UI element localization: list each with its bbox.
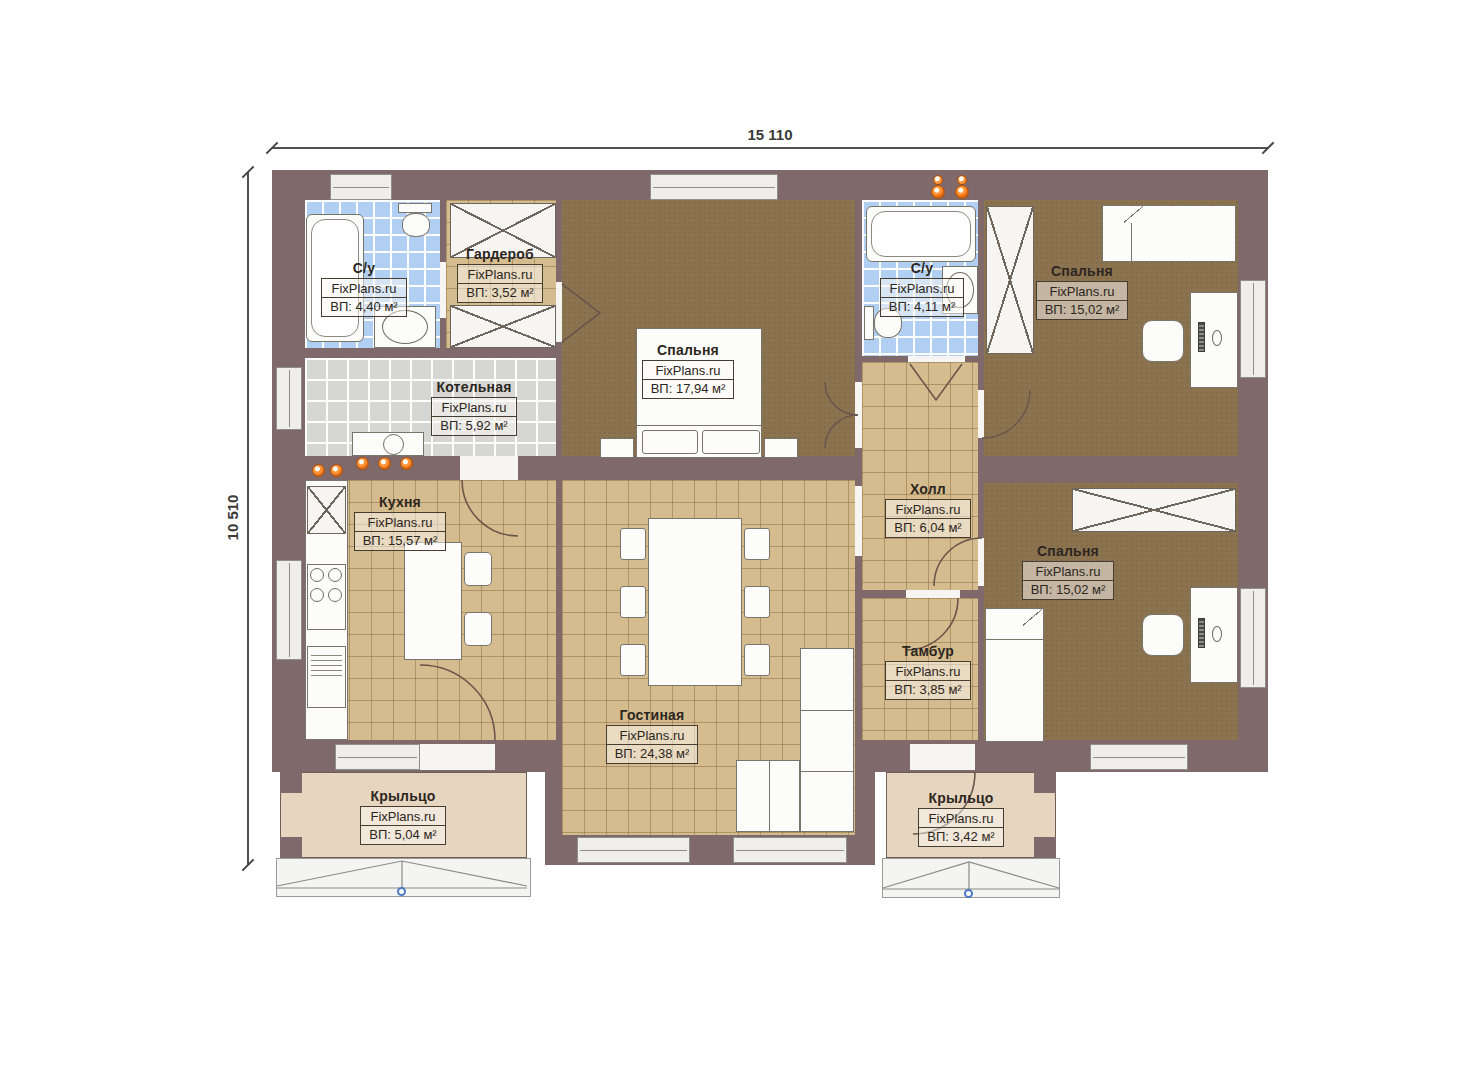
mouse-icon (1212, 626, 1222, 642)
room-name: Крыльцо (891, 790, 1031, 806)
room-area: ВП: 5,92 м² (432, 417, 515, 435)
room-label-bathroom-right: С/у FixPlans.ru ВП: 4,11 м² (852, 260, 992, 317)
window (335, 744, 420, 770)
watermark: FixPlans.ru (1037, 282, 1128, 301)
blanket-fold (1124, 206, 1144, 223)
refrigerator (307, 646, 346, 708)
room-name: Холл (858, 481, 998, 497)
dimension-line-left (247, 172, 249, 865)
dimension-line-top (272, 147, 1268, 149)
window (577, 837, 690, 863)
sofa-chaise (736, 760, 800, 832)
computer-monitor-icon (1198, 618, 1205, 648)
window (733, 837, 847, 863)
room-label-living: Гостиная FixPlans.ru ВП: 24,38 м² (582, 707, 722, 764)
room-name: Спальня (1012, 263, 1152, 279)
toilet (402, 213, 430, 237)
watermark: FixPlans.ru (643, 361, 734, 380)
watermark: FixPlans.ru (607, 726, 698, 745)
stove-burner (310, 568, 324, 582)
room-label-boiler: Котельная FixPlans.ru ВП: 5,92 м² (404, 379, 544, 436)
room-hall (862, 362, 978, 590)
blanket-fold (1023, 609, 1043, 626)
bathtub (866, 206, 976, 262)
chair (744, 644, 770, 676)
sofa (800, 648, 854, 832)
watermark: FixPlans.ru (1023, 562, 1114, 581)
window (650, 174, 778, 200)
room-area: ВП: 4,11 м² (881, 298, 963, 316)
door-opening (908, 356, 965, 362)
chair (620, 586, 646, 618)
porch-pillar (280, 772, 302, 793)
toilet-tank (398, 203, 432, 213)
pillow (642, 430, 698, 454)
chair (744, 586, 770, 618)
utility-point-icon (330, 464, 343, 477)
utility-point-icon (931, 185, 945, 199)
survey-marker-icon (964, 889, 973, 898)
room-name: С/у (852, 260, 992, 276)
room-name: Спальня (618, 342, 758, 358)
watermark: FixPlans.ru (322, 279, 405, 298)
room-area: ВП: 15,02 м² (1023, 581, 1114, 599)
nightstand (600, 438, 634, 458)
window (330, 174, 392, 200)
room-label-tambour: Тамбур FixPlans.ru ВП: 3,85 м² (858, 643, 998, 700)
watermark: FixPlans.ru (361, 807, 444, 826)
room-area: ВП: 3,85 м² (886, 681, 969, 699)
window (1240, 280, 1266, 378)
room-name: Котельная (404, 379, 544, 395)
utility-point-icon (378, 457, 391, 470)
nightstand (764, 438, 798, 458)
room-area: ВП: 6,04 м² (886, 519, 969, 537)
utility-point-icon (955, 185, 969, 199)
dimension-width-label: 15 110 (720, 126, 820, 143)
room-label-bedroom-topright: Спальня FixPlans.ru ВП: 15,02 м² (1012, 263, 1152, 320)
watermark: FixPlans.ru (886, 500, 969, 519)
watermark: FixPlans.ru (355, 513, 446, 532)
wardrobe-cabinet (450, 305, 556, 348)
room-label-bedroom-center: Спальня FixPlans.ru ВП: 17,94 м² (618, 342, 758, 399)
watermark: FixPlans.ru (458, 265, 541, 284)
room-name: Тамбур (858, 643, 998, 659)
watermark: FixPlans.ru (881, 279, 963, 298)
window (1090, 744, 1188, 770)
room-area: ВП: 3,42 м² (919, 828, 1002, 846)
window (276, 367, 302, 430)
room-label-wardrobe: Гардероб FixPlans.ru ВП: 3,52 м² (430, 246, 570, 303)
desk-chair (1142, 320, 1184, 362)
dimension-height-label: 10 510 (224, 468, 241, 568)
watermark: FixPlans.ru (919, 809, 1002, 828)
room-name: Гардероб (430, 246, 570, 262)
chair (620, 644, 646, 676)
room-label-porch-right: Крыльцо FixPlans.ru ВП: 3,42 м² (891, 790, 1031, 847)
computer-monitor-icon (1198, 322, 1205, 352)
chair (620, 528, 646, 560)
room-name: Кухня (330, 494, 470, 510)
chair (464, 612, 492, 646)
room-label-hall: Холл FixPlans.ru ВП: 6,04 м² (858, 481, 998, 538)
stove-burner (328, 568, 342, 582)
room-area: ВП: 4,40 м² (322, 298, 405, 316)
utility-point-icon (312, 464, 325, 477)
single-bed (1102, 205, 1236, 262)
utility-point-icon (957, 175, 967, 185)
room-name: Крыльцо (333, 788, 473, 804)
porch-pillar (1034, 772, 1056, 793)
room-label-kitchen: Кухня FixPlans.ru ВП: 15,57 м² (330, 494, 470, 551)
door-opening (978, 538, 984, 586)
door-opening (855, 382, 862, 448)
entrance-door-opening (420, 744, 495, 770)
door-opening (906, 590, 960, 598)
stove-burner (310, 588, 324, 602)
room-name: Гостиная (582, 707, 722, 723)
utility-point-icon (933, 175, 943, 185)
dining-table (648, 518, 742, 686)
chair (744, 528, 770, 560)
room-area: ВП: 15,57 м² (355, 532, 446, 550)
utility-point-icon (356, 457, 369, 470)
room-label-porch-left: Крыльцо FixPlans.ru ВП: 5,04 м² (333, 788, 473, 845)
utility-point-icon (400, 457, 413, 470)
stove-burner (328, 588, 342, 602)
room-label-bathroom-left: С/у FixPlans.ru ВП: 4,40 м² (294, 260, 434, 317)
watermark: FixPlans.ru (432, 398, 515, 417)
watermark: FixPlans.ru (886, 662, 969, 681)
chair (464, 552, 492, 586)
mouse-icon (1212, 330, 1222, 346)
room-label-bedroom-bottomright: Спальня FixPlans.ru ВП: 15,02 м² (998, 543, 1138, 600)
survey-marker-icon (397, 887, 406, 896)
window (276, 560, 302, 660)
boiler-sink (383, 434, 404, 455)
wardrobe-cabinet (1072, 488, 1236, 532)
porch-pillar (1034, 837, 1056, 858)
porch-pillar (280, 837, 302, 858)
door-opening (978, 390, 984, 438)
room-area: ВП: 17,94 м² (643, 380, 734, 398)
floor-plan: 15 110 10 510 (0, 0, 1474, 1080)
room-area: ВП: 15,02 м² (1037, 301, 1128, 319)
room-area: ВП: 3,52 м² (458, 284, 541, 302)
window (1240, 588, 1266, 688)
door-opening (460, 456, 518, 480)
pillow (702, 430, 760, 454)
room-area: ВП: 24,38 м² (607, 745, 698, 763)
room-area: ВП: 5,04 м² (361, 826, 444, 844)
kitchen-table (404, 542, 462, 660)
room-name: С/у (294, 260, 434, 276)
entrance-door-opening (910, 744, 975, 770)
room-name: Спальня (998, 543, 1138, 559)
desk-chair (1142, 614, 1184, 656)
